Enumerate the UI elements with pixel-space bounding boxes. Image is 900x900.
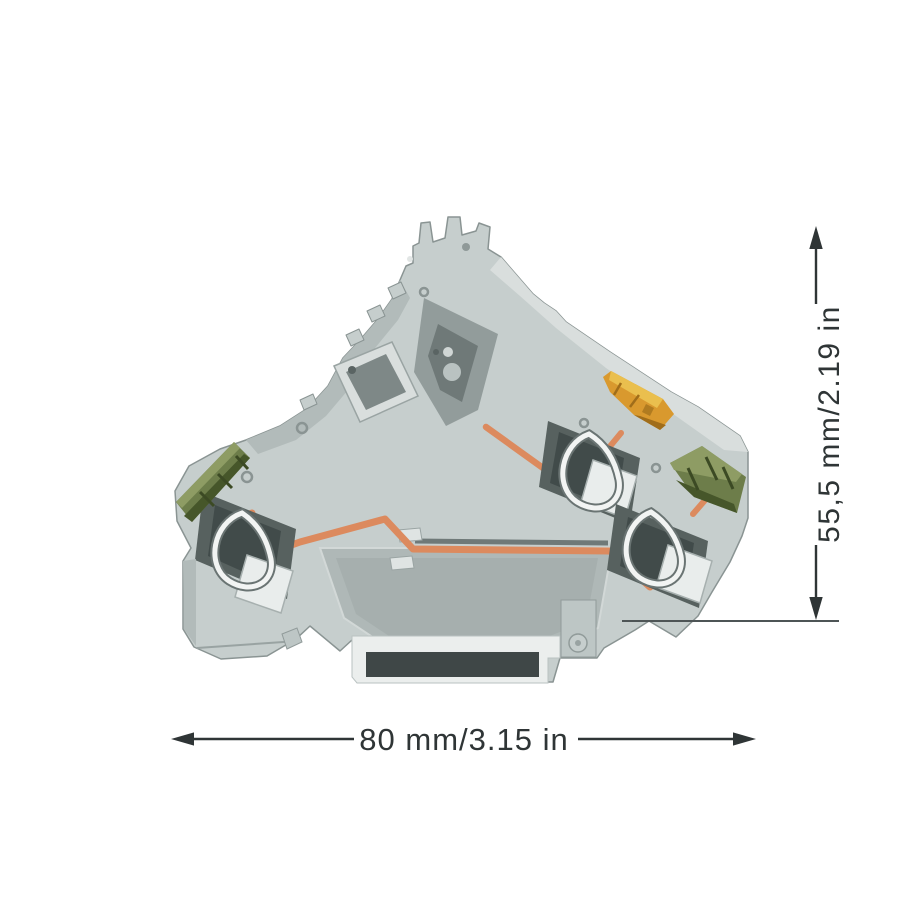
dimension-arrow-right-icon: [733, 732, 756, 745]
dimension-arrow-up-icon: [809, 226, 822, 249]
dimension-arrow-left-icon: [171, 732, 194, 745]
dimension-arrow-down-icon: [809, 597, 822, 620]
terminal-block-diagram: 55,5 mm/2.19 in 80 mm/3.15 in: [0, 0, 900, 900]
terminal-block: [175, 217, 748, 683]
width-dimension: 80 mm/3.15 in: [171, 722, 756, 757]
width-dimension-label: 80 mm/3.15 in: [359, 722, 568, 757]
rail-slot: [366, 652, 539, 677]
diagram-canvas: 55,5 mm/2.19 in 80 mm/3.15 in: [0, 0, 900, 900]
height-dimension-label: 55,5 mm/2.19 in: [813, 305, 846, 543]
